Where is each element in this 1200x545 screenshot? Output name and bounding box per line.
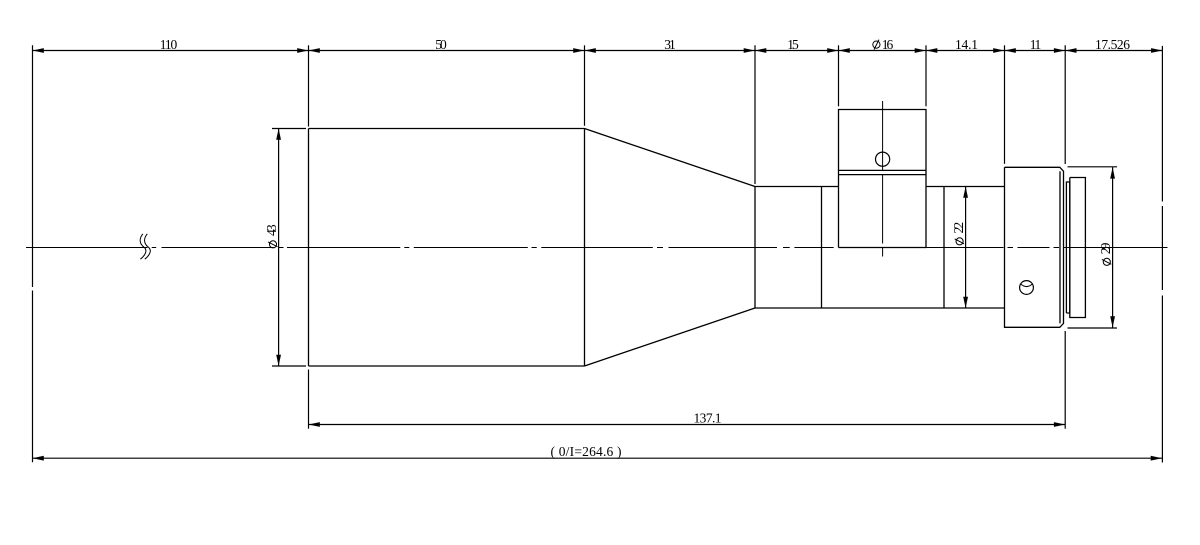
svg-text:50: 50 bbox=[435, 37, 447, 52]
svg-text:22: 22 bbox=[951, 222, 966, 234]
svg-text:14.1: 14.1 bbox=[955, 37, 978, 52]
svg-text:16: 16 bbox=[882, 37, 894, 52]
svg-text:137.1: 137.1 bbox=[694, 411, 722, 426]
svg-text:110: 110 bbox=[160, 37, 178, 52]
svg-text:11: 11 bbox=[1030, 37, 1042, 52]
svg-text:43: 43 bbox=[264, 224, 279, 236]
svg-text:( 0/I=264.6 ): ( 0/I=264.6 ) bbox=[551, 444, 622, 459]
svg-text:31: 31 bbox=[664, 37, 676, 52]
svg-text:15: 15 bbox=[787, 37, 799, 52]
svg-text:29: 29 bbox=[1098, 242, 1113, 254]
svg-text:17.526: 17.526 bbox=[1095, 37, 1130, 52]
